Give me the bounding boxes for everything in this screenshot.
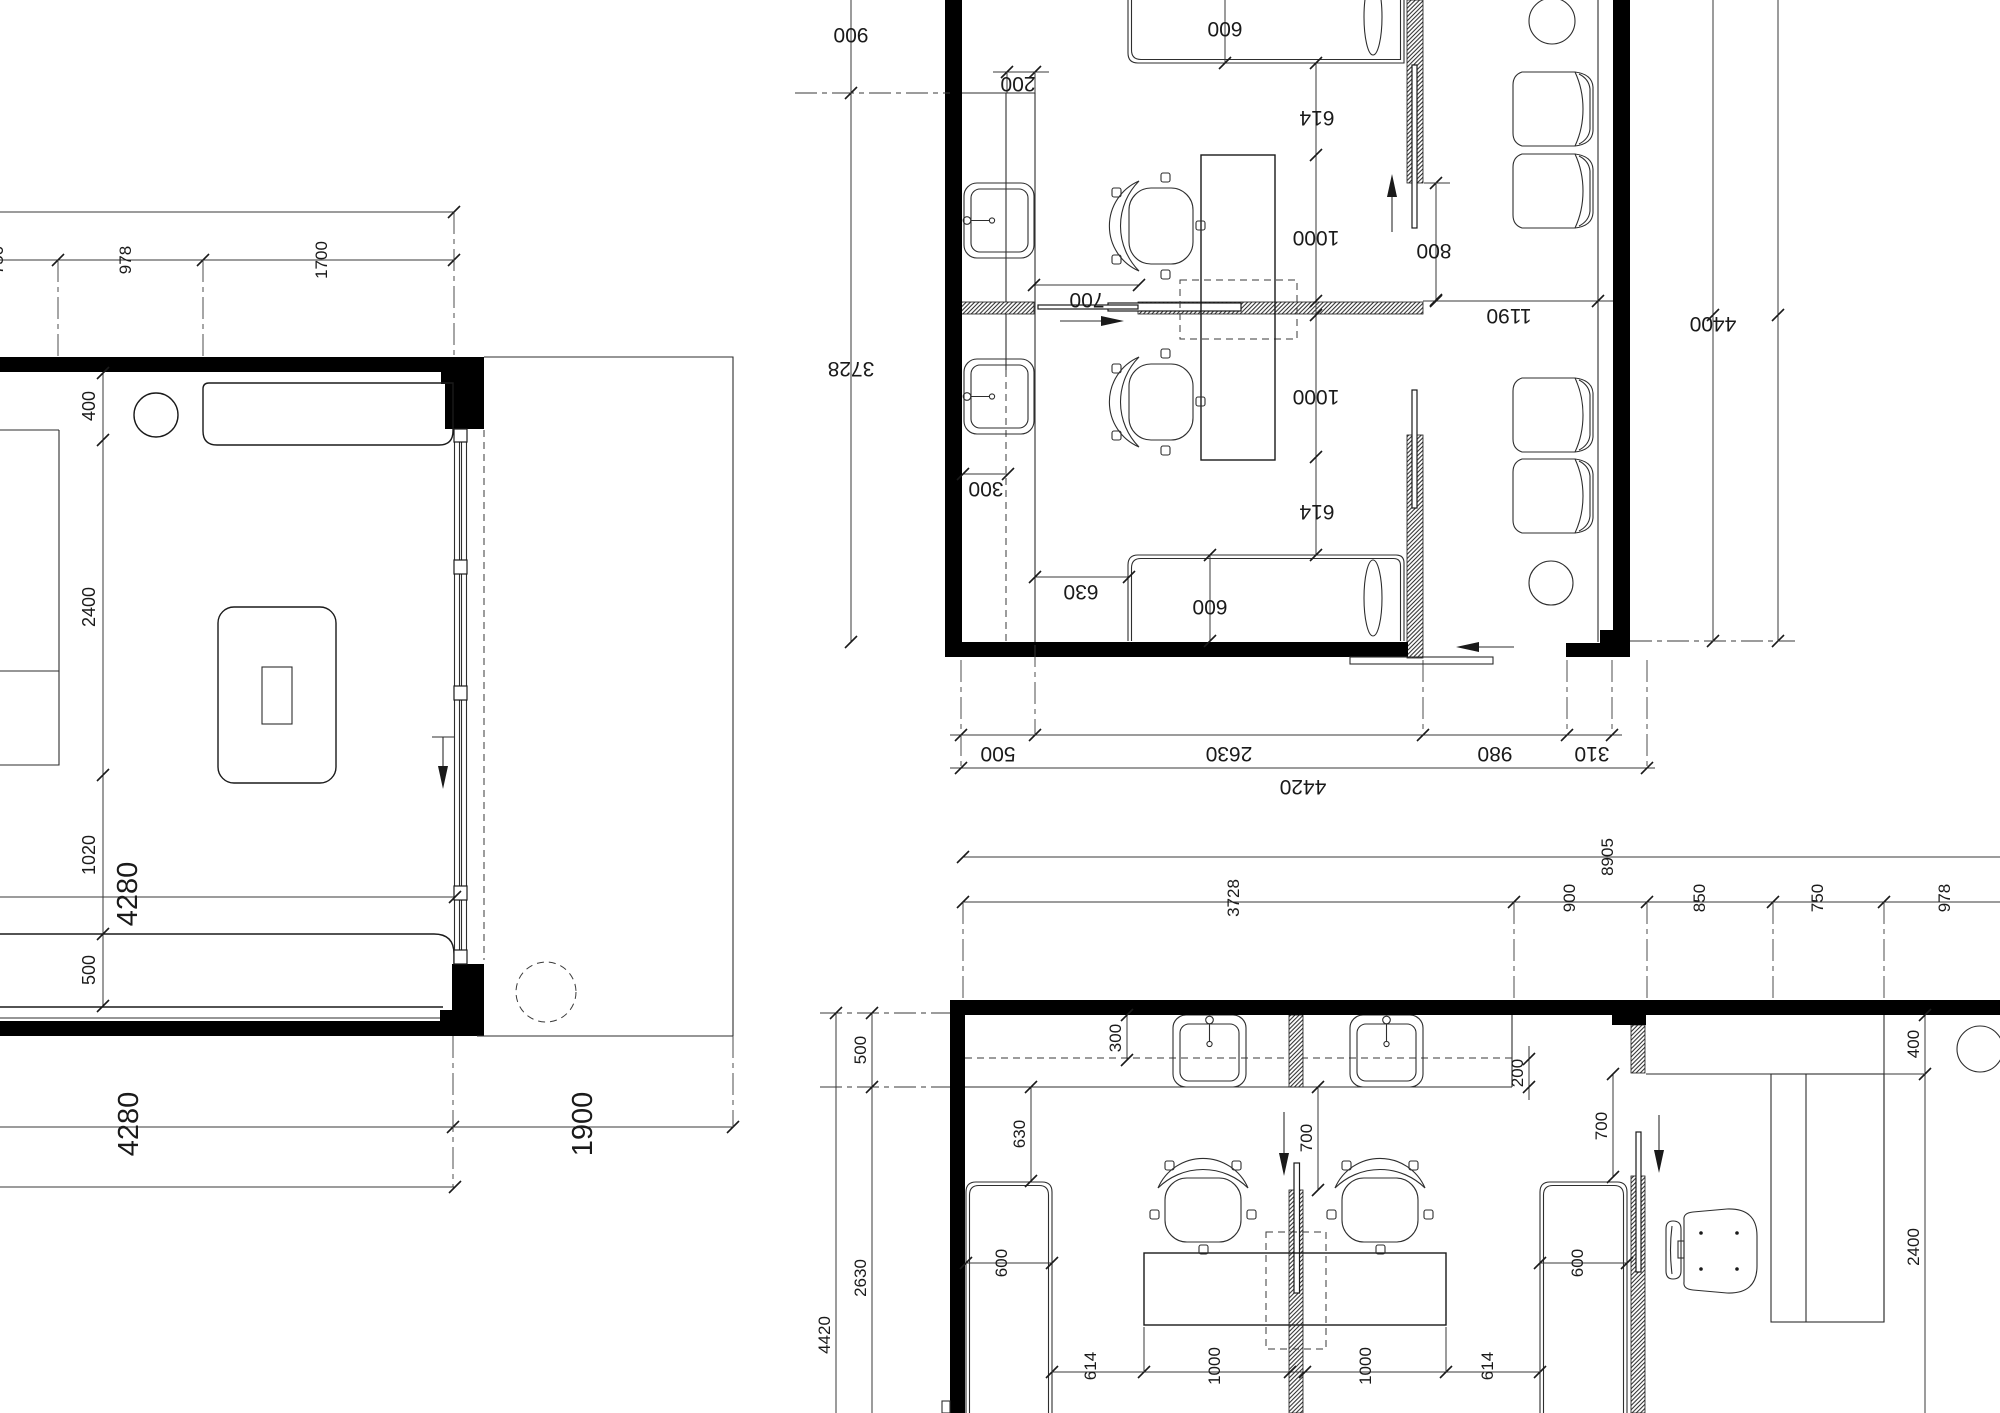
svg-text:630: 630	[1010, 1120, 1029, 1148]
svg-text:2400: 2400	[1904, 1228, 1923, 1266]
svg-text:3728: 3728	[828, 357, 875, 380]
svg-text:1000: 1000	[1356, 1347, 1375, 1385]
svg-text:614: 614	[1299, 106, 1334, 129]
svg-text:978: 978	[116, 246, 135, 274]
svg-text:600: 600	[992, 1249, 1011, 1277]
svg-text:600: 600	[1207, 17, 1242, 40]
svg-text:4280: 4280	[113, 1092, 145, 1157]
svg-text:600: 600	[1192, 595, 1227, 618]
svg-text:614: 614	[1299, 500, 1334, 523]
svg-text:4400: 4400	[1690, 312, 1737, 335]
svg-text:1190: 1190	[1486, 304, 1531, 327]
svg-text:600: 600	[1568, 1249, 1587, 1277]
svg-text:1700: 1700	[312, 241, 331, 279]
svg-text:1020: 1020	[79, 835, 99, 875]
svg-text:1000: 1000	[1205, 1347, 1224, 1385]
svg-text:4420: 4420	[1280, 775, 1327, 798]
svg-text:2630: 2630	[851, 1259, 870, 1297]
svg-text:300: 300	[1106, 1024, 1125, 1052]
svg-text:500: 500	[980, 742, 1015, 765]
svg-text:614: 614	[1478, 1352, 1497, 1380]
svg-text:1000: 1000	[1293, 226, 1340, 249]
svg-text:300: 300	[968, 477, 1003, 500]
svg-text:850: 850	[1690, 884, 1709, 912]
svg-text:750: 750	[0, 246, 7, 274]
svg-text:310: 310	[1574, 742, 1609, 765]
svg-text:8905: 8905	[1598, 838, 1617, 876]
svg-text:4280: 4280	[112, 862, 144, 927]
svg-text:900: 900	[833, 23, 868, 46]
svg-text:3728: 3728	[1224, 879, 1243, 917]
svg-text:630: 630	[1063, 580, 1098, 603]
svg-text:800: 800	[1416, 239, 1451, 262]
svg-text:1000: 1000	[1293, 385, 1340, 408]
svg-text:900: 900	[1560, 884, 1579, 912]
svg-text:700: 700	[1297, 1124, 1316, 1152]
svg-text:700: 700	[1592, 1112, 1611, 1140]
svg-text:200: 200	[1508, 1059, 1527, 1087]
svg-text:2630: 2630	[1206, 742, 1253, 765]
svg-text:400: 400	[79, 391, 99, 421]
svg-text:500: 500	[79, 955, 99, 985]
svg-text:4420: 4420	[815, 1316, 834, 1354]
svg-text:200: 200	[1000, 72, 1035, 95]
svg-text:614: 614	[1081, 1352, 1100, 1380]
svg-text:1900: 1900	[567, 1092, 599, 1157]
svg-text:978: 978	[1935, 884, 1954, 912]
svg-text:400: 400	[1904, 1030, 1923, 1058]
svg-text:980: 980	[1477, 742, 1512, 765]
svg-text:750: 750	[1808, 884, 1827, 912]
svg-text:2400: 2400	[79, 587, 99, 627]
svg-text:500: 500	[851, 1036, 870, 1064]
svg-text:700: 700	[1069, 288, 1104, 311]
